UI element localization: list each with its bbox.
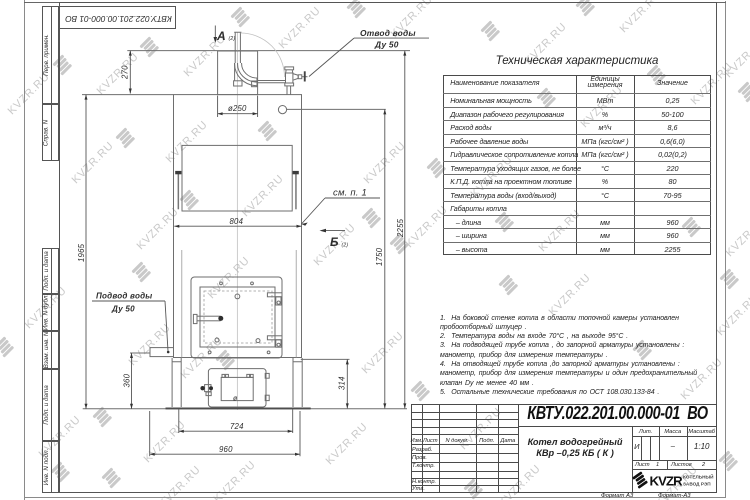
svg-text:ЗАВОД РЭП: ЗАВОД РЭП xyxy=(683,481,711,486)
svg-text:KVZR: KVZR xyxy=(650,473,684,488)
svg-text:КОТЕЛЬНЫЙ: КОТЕЛЬНЫЙ xyxy=(683,472,714,479)
